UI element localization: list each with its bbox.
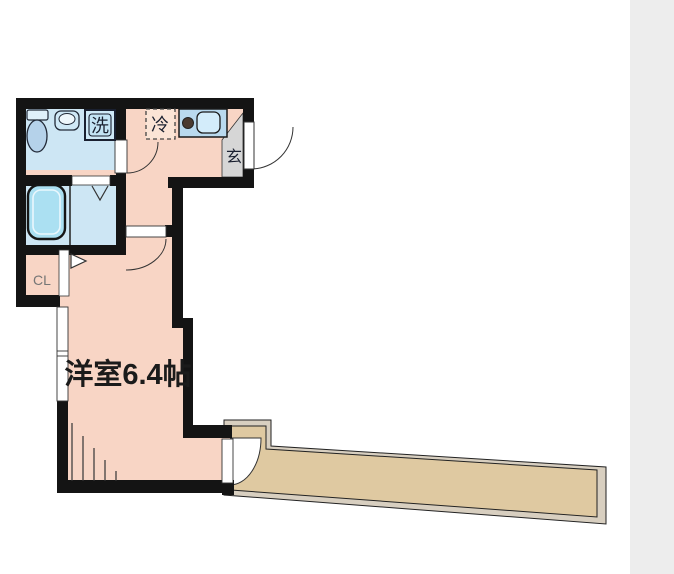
main-room-label: 洋室6.4帖: [64, 357, 191, 391]
entrance-door: [244, 122, 293, 169]
kitchen-sink: [197, 112, 220, 133]
balcony: [224, 420, 606, 524]
bathtub: [28, 185, 65, 239]
refrigerator-label: 冷: [151, 115, 169, 135]
wash-basin: [55, 111, 79, 130]
balcony-floor: [230, 426, 597, 517]
entrance-label: 玄: [226, 148, 242, 166]
balcony-door: [222, 439, 233, 483]
washer-space: 洗: [85, 110, 115, 140]
kitchen-counter: [179, 109, 227, 137]
floor-plan-drawing: 洗 冷 玄 CL 洋室6.4帖: [0, 0, 674, 574]
washer-label: 洗: [91, 116, 109, 136]
refrigerator-space: 冷: [146, 109, 175, 139]
burner: [183, 118, 194, 129]
floor-plan-page: 洗 冷 玄 CL 洋室6.4帖: [0, 0, 674, 574]
closet-label: CL: [33, 272, 51, 288]
toilet: [27, 110, 48, 152]
